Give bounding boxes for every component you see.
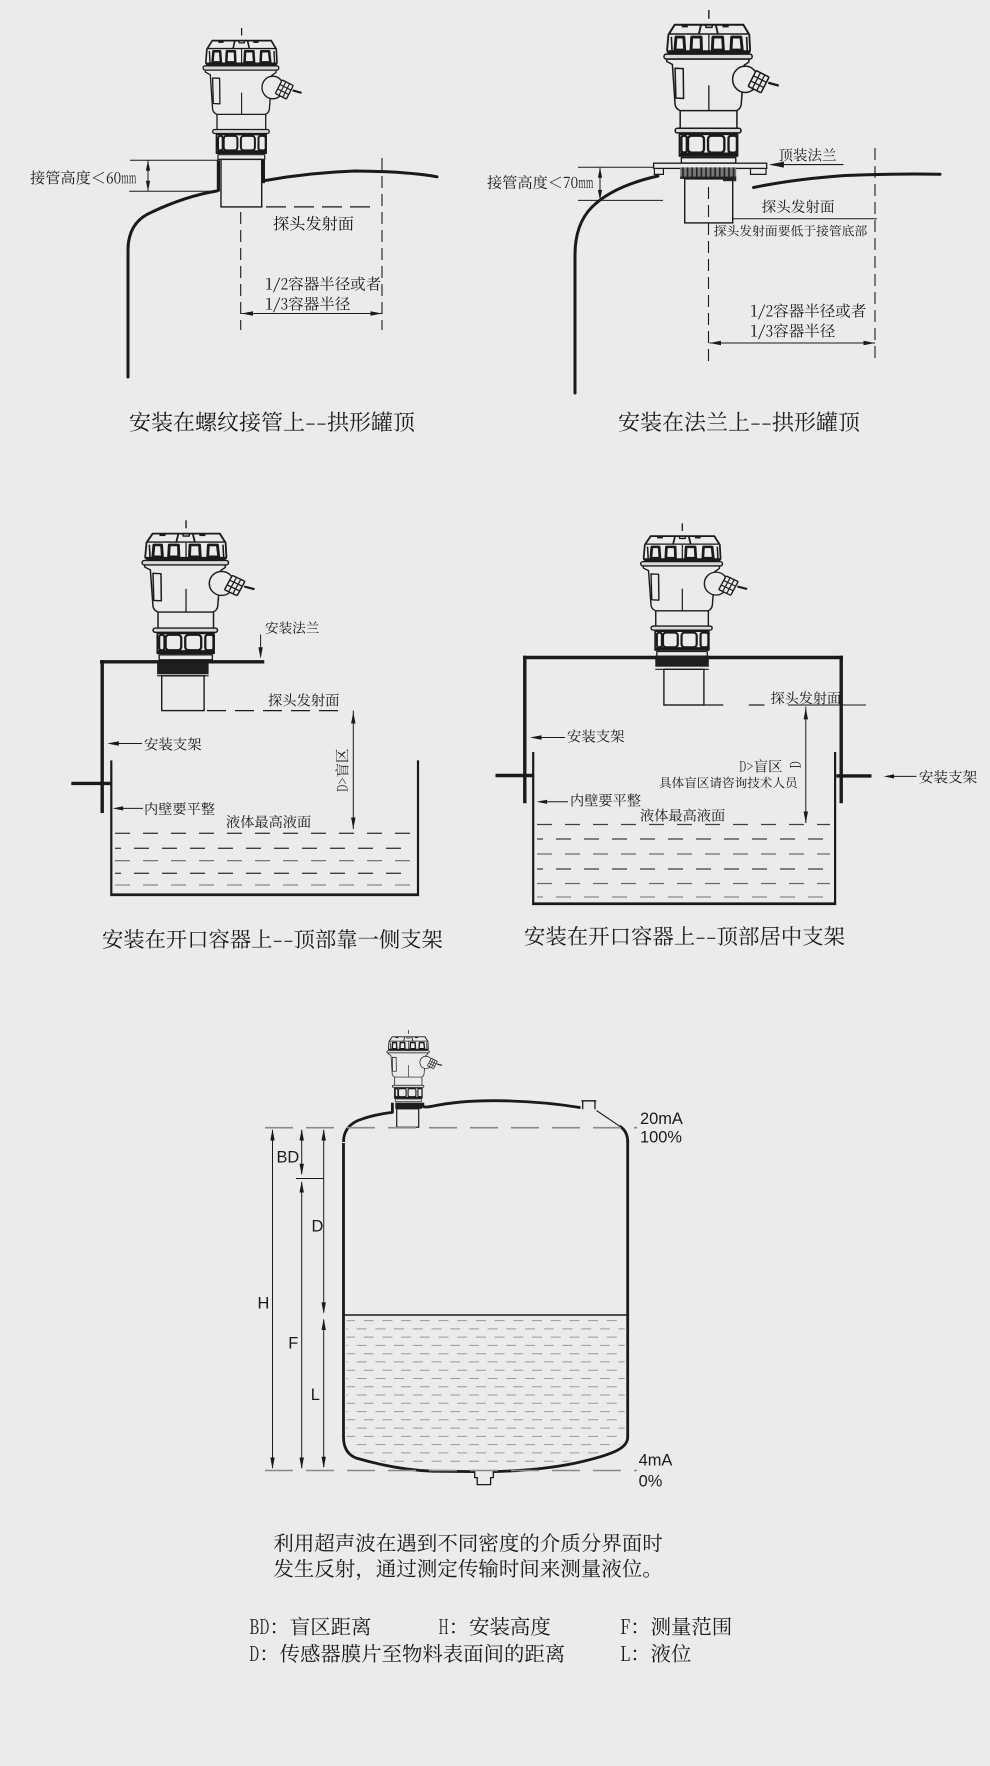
svg-text:H: H [258, 1294, 270, 1312]
svg-text:F: F [288, 1335, 298, 1353]
svg-text:L: L [311, 1386, 320, 1404]
svg-text:D: D [312, 1217, 324, 1235]
svg-text:0%: 0% [639, 1473, 663, 1491]
svg-text:BD: BD [277, 1148, 300, 1166]
svg-text:20mA: 20mA [640, 1110, 683, 1128]
svg-text:4mA: 4mA [639, 1451, 673, 1469]
svg-text:100%: 100% [640, 1128, 682, 1146]
